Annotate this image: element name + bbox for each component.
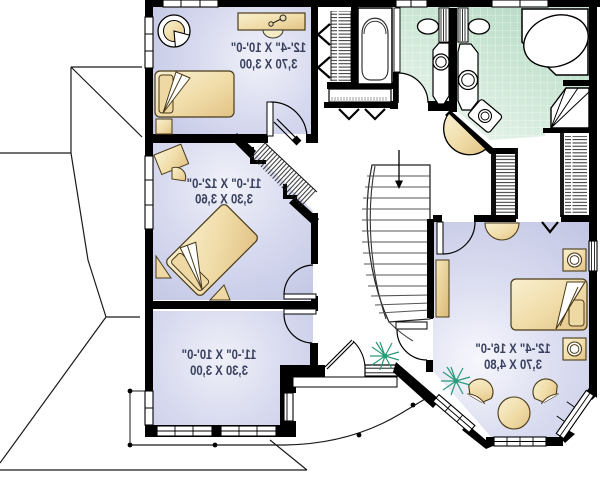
svg-text:3,30 X 3,60: 3,30 X 3,60 bbox=[195, 192, 253, 207]
svg-text:11'-0" X 10'-0": 11'-0" X 10'-0" bbox=[182, 347, 257, 362]
svg-text:3,70 X 4,80: 3,70 X 4,80 bbox=[484, 357, 542, 372]
svg-text:11'-0" X 12'-0": 11'-0" X 12'-0" bbox=[187, 176, 262, 191]
svg-text:12'-4" X 16'-0": 12'-4" X 16'-0" bbox=[475, 341, 550, 356]
svg-text:12'-4" X 10'-0": 12'-4" X 10'-0" bbox=[231, 40, 306, 55]
svg-text:3,70 X 3,00: 3,70 X 3,00 bbox=[239, 57, 297, 72]
svg-text:3,30 X 3,00: 3,30 X 3,00 bbox=[190, 363, 248, 378]
